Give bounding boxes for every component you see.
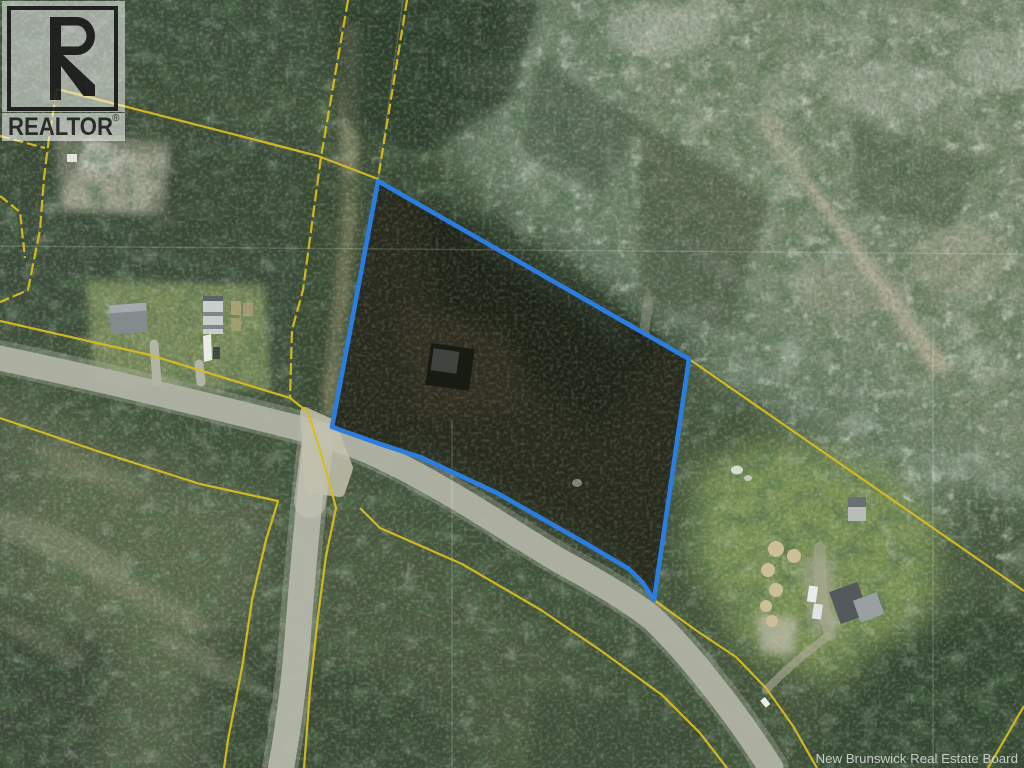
svg-text:REALTOR: REALTOR bbox=[8, 113, 113, 141]
svg-text:New Brunswick Real Estate Boar: New Brunswick Real Estate Board bbox=[816, 751, 1019, 766]
svg-text:®: ® bbox=[112, 113, 120, 124]
